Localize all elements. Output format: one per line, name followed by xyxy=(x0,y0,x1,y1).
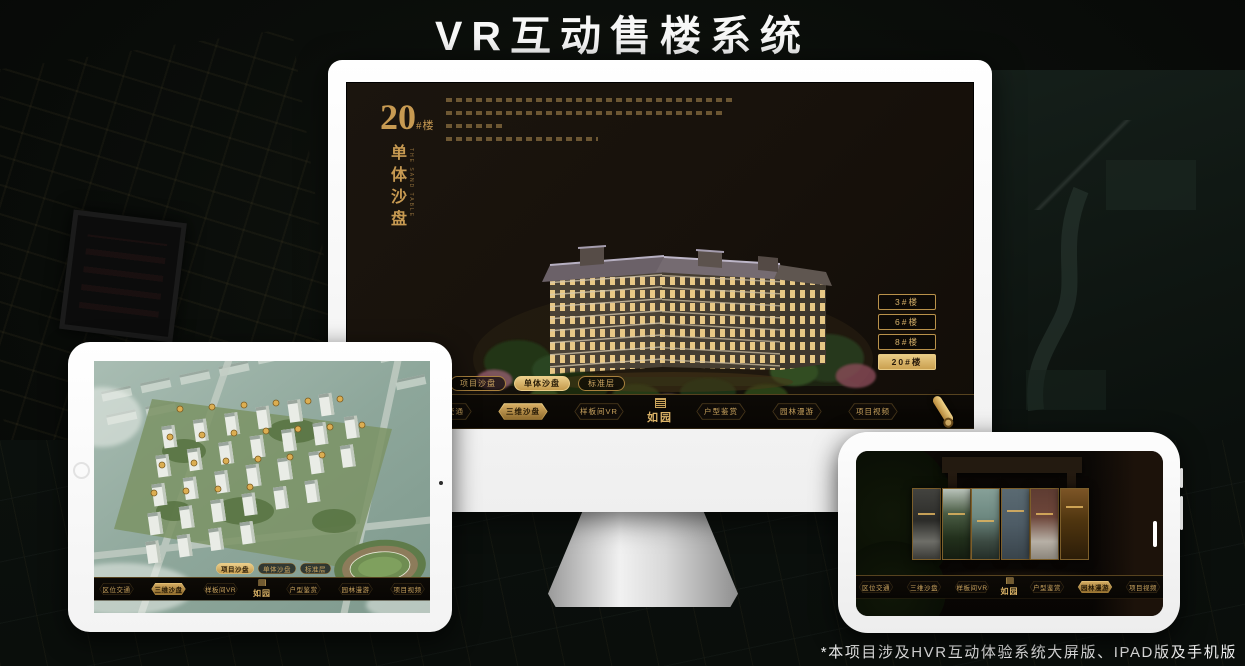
nav-item-showroom-vr[interactable]: 样板间VR xyxy=(953,581,992,594)
monitor-stand xyxy=(548,512,738,607)
floor-button-6[interactable]: 6#楼 xyxy=(878,314,936,330)
tab-project-sandtable[interactable]: 项目沙盘 xyxy=(216,563,254,574)
tablet-device: 项目沙盘 单体沙盘 标准层 区位交通 三维沙盘 样板间VR 如园 户型鉴赏 园林… xyxy=(68,342,452,632)
phone-side-button xyxy=(1180,496,1183,530)
tablet-navbar: 区位交通 三维沙盘 样板间VR 如园 户型鉴赏 园林漫游 项目视频 xyxy=(94,577,430,601)
tablet-view-tabs: 项目沙盘 单体沙盘 标准层 xyxy=(94,563,430,574)
poster-canvas: 20#楼 单体沙盘 THE SAND TABLE xyxy=(0,0,1245,666)
tab-project-sandtable[interactable]: 项目沙盘 xyxy=(450,376,506,391)
section-title-vertical: 单体沙盘 xyxy=(384,144,408,232)
scroll-menu-icon[interactable] xyxy=(931,394,955,424)
phone-navbar: 区位交通 三维沙盘 样板间VR 如园 户型鉴赏 园林漫游 项目视频 xyxy=(856,575,1163,599)
floor-button-20[interactable]: 20#楼 xyxy=(878,354,936,370)
nav-item-unit-plans[interactable]: 户型鉴赏 xyxy=(693,403,749,421)
brand-logo: 如园 xyxy=(647,398,673,425)
gallery-panel-5[interactable] xyxy=(1030,488,1059,560)
nav-item-unit-plans[interactable]: 户型鉴赏 xyxy=(1028,581,1067,594)
tablet-screen: 项目沙盘 单体沙盘 标准层 区位交通 三维沙盘 样板间VR 如园 户型鉴赏 园林… xyxy=(94,361,430,613)
nav-item-location[interactable]: 区位交通 xyxy=(857,581,896,594)
tablet-camera-ring xyxy=(73,462,90,479)
nav-item-3d-sandtable[interactable]: 三维沙盘 xyxy=(149,583,188,596)
page-title: VR互动售楼系统 xyxy=(0,2,1245,62)
gallery-panel-3[interactable] xyxy=(971,488,1000,560)
building-number-title: 20#楼 xyxy=(380,96,435,138)
tablet-dock: 项目沙盘 单体沙盘 标准层 区位交通 三维沙盘 样板间VR 如园 户型鉴赏 园林… xyxy=(94,563,430,613)
nav-item-garden-tour[interactable]: 园林漫游 xyxy=(336,583,375,596)
description-text-lines xyxy=(446,98,746,150)
nav-item-location[interactable]: 区位交通 xyxy=(97,583,136,596)
tab-standard-floor[interactable]: 标准层 xyxy=(300,563,331,574)
nav-item-showroom-vr[interactable]: 样板间VR xyxy=(201,583,240,596)
nav-item-garden-tour[interactable]: 园林漫游 xyxy=(1076,581,1115,594)
gallery-panel-2[interactable] xyxy=(942,488,971,560)
bg-plaque-frame xyxy=(59,210,187,343)
building-number-unit: #楼 xyxy=(416,120,435,132)
phone-home-indicator xyxy=(1153,521,1157,547)
courtyard-gate xyxy=(942,457,1082,473)
nav-item-showroom-vr[interactable]: 样板间VR xyxy=(571,403,627,421)
nav-item-3d-sandtable[interactable]: 三维沙盘 xyxy=(905,581,944,594)
phone-screen: 区位交通 三维沙盘 样板间VR 如园 户型鉴赏 园林漫游 项目视频 xyxy=(856,451,1163,616)
nav-item-3d-sandtable[interactable]: 三维沙盘 xyxy=(495,403,551,421)
floor-button-8[interactable]: 8#楼 xyxy=(878,334,936,350)
nav-item-project-video[interactable]: 项目视频 xyxy=(845,403,901,421)
phone-dock: 区位交通 三维沙盘 样板间VR 如园 户型鉴赏 园林漫游 项目视频 xyxy=(856,575,1163,600)
floor-button-3[interactable]: 3#楼 xyxy=(878,294,936,310)
section-title-english: THE SAND TABLE xyxy=(408,148,414,218)
gallery-panel-6[interactable] xyxy=(1060,488,1089,560)
tab-single-sandtable[interactable]: 单体沙盘 xyxy=(258,563,296,574)
brand-seal-icon xyxy=(258,580,266,587)
brand-logo: 如园 xyxy=(253,580,271,599)
phone-device: 区位交通 三维沙盘 样板间VR 如园 户型鉴赏 园林漫游 项目视频 xyxy=(838,432,1180,633)
brand-seal-icon xyxy=(655,398,666,408)
nav-item-project-video[interactable]: 项目视频 xyxy=(1124,581,1163,594)
floor-button-group: 3#楼 6#楼 8#楼 20#楼 xyxy=(878,294,936,374)
footnote-text: *本项目涉及HVR互动体验系统大屏版、IPAD版及手机版 xyxy=(821,641,1237,662)
tablet-camera-dot xyxy=(439,481,443,485)
gallery-panel-1[interactable] xyxy=(912,488,941,560)
nav-item-garden-tour[interactable]: 园林漫游 xyxy=(769,403,825,421)
brand-seal-icon xyxy=(1006,578,1014,585)
nav-item-project-video[interactable]: 项目视频 xyxy=(388,583,427,596)
bg-scratch-line xyxy=(1010,120,1160,210)
gallery-panel-4[interactable] xyxy=(1001,488,1030,560)
phone-side-button xyxy=(1180,468,1183,488)
desktop-view-tabs: 项目沙盘 单体沙盘 标准层 xyxy=(450,376,625,391)
tab-single-sandtable[interactable]: 单体沙盘 xyxy=(514,376,570,391)
tab-standard-floor[interactable]: 标准层 xyxy=(578,376,625,391)
nav-item-unit-plans[interactable]: 户型鉴赏 xyxy=(284,583,323,596)
brand-logo: 如园 xyxy=(1001,578,1019,597)
